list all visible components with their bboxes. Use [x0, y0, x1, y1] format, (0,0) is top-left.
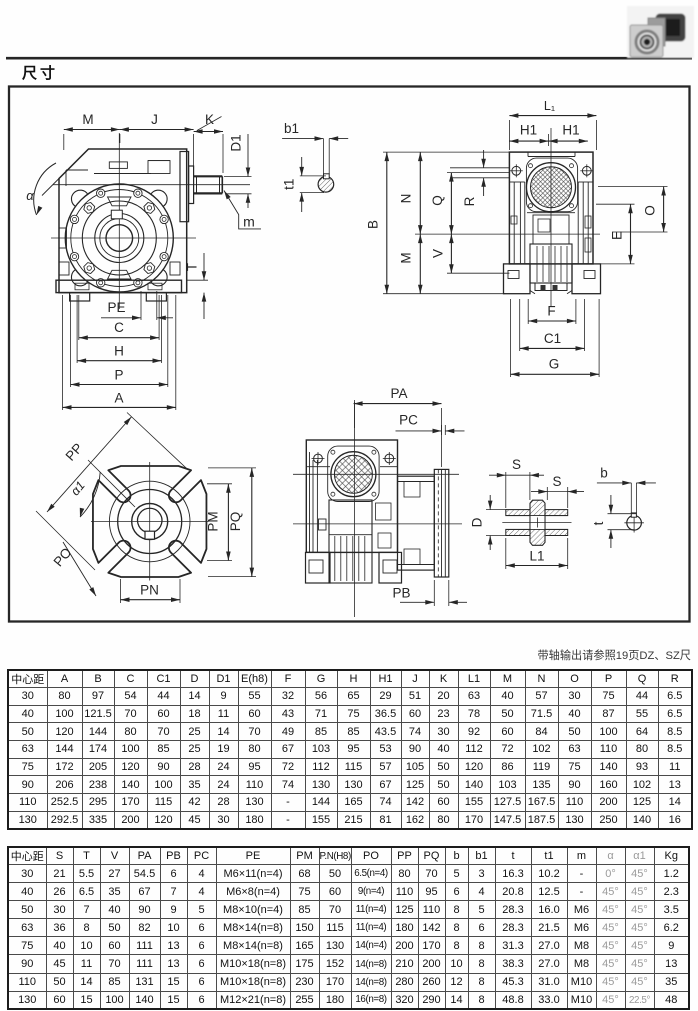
svg-text:S: S	[552, 474, 561, 489]
svg-text:PN: PN	[140, 583, 159, 598]
svg-text:M: M	[399, 252, 414, 263]
svg-text:G: G	[549, 357, 560, 372]
svg-text:M: M	[82, 112, 93, 127]
svg-text:PB: PB	[392, 585, 410, 600]
svg-text:b1: b1	[284, 121, 299, 136]
svg-text:N: N	[399, 194, 414, 204]
svg-text:V: V	[431, 249, 446, 258]
svg-text:t: t	[591, 521, 606, 525]
svg-text:H: H	[114, 344, 124, 359]
svg-text:O: O	[643, 205, 658, 216]
svg-text:L₁: L₁	[544, 99, 555, 113]
svg-text:J: J	[151, 112, 158, 127]
svg-text:α: α	[26, 188, 34, 203]
svg-text:Q: Q	[430, 195, 445, 206]
svg-text:S: S	[512, 457, 521, 472]
svg-text:t1: t1	[282, 179, 297, 190]
svg-text:b: b	[600, 466, 608, 481]
svg-text:T: T	[185, 263, 200, 271]
svg-text:K: K	[205, 112, 214, 127]
svg-text:R: R	[462, 196, 477, 206]
svg-text:F: F	[547, 304, 555, 319]
svg-text:H1: H1	[562, 123, 579, 138]
svg-text:m: m	[243, 214, 255, 230]
svg-text:C1: C1	[544, 331, 561, 346]
svg-text:A: A	[114, 391, 123, 406]
svg-text:PA: PA	[390, 386, 407, 401]
svg-text:D: D	[470, 517, 485, 527]
svg-text:L1: L1	[529, 549, 544, 564]
svg-text:H1: H1	[520, 123, 537, 138]
svg-text:P: P	[114, 368, 123, 383]
svg-text:B: B	[366, 220, 381, 229]
svg-text:PM: PM	[206, 511, 221, 531]
svg-text:C: C	[114, 320, 124, 335]
svg-text:PC: PC	[399, 413, 418, 428]
svg-text:PE: PE	[107, 300, 125, 315]
svg-text:PO: PO	[51, 545, 75, 570]
svg-text:PQ: PQ	[228, 512, 243, 532]
svg-text:α1: α1	[68, 479, 88, 499]
svg-text:D1: D1	[229, 134, 244, 151]
svg-text:PP: PP	[63, 440, 86, 463]
